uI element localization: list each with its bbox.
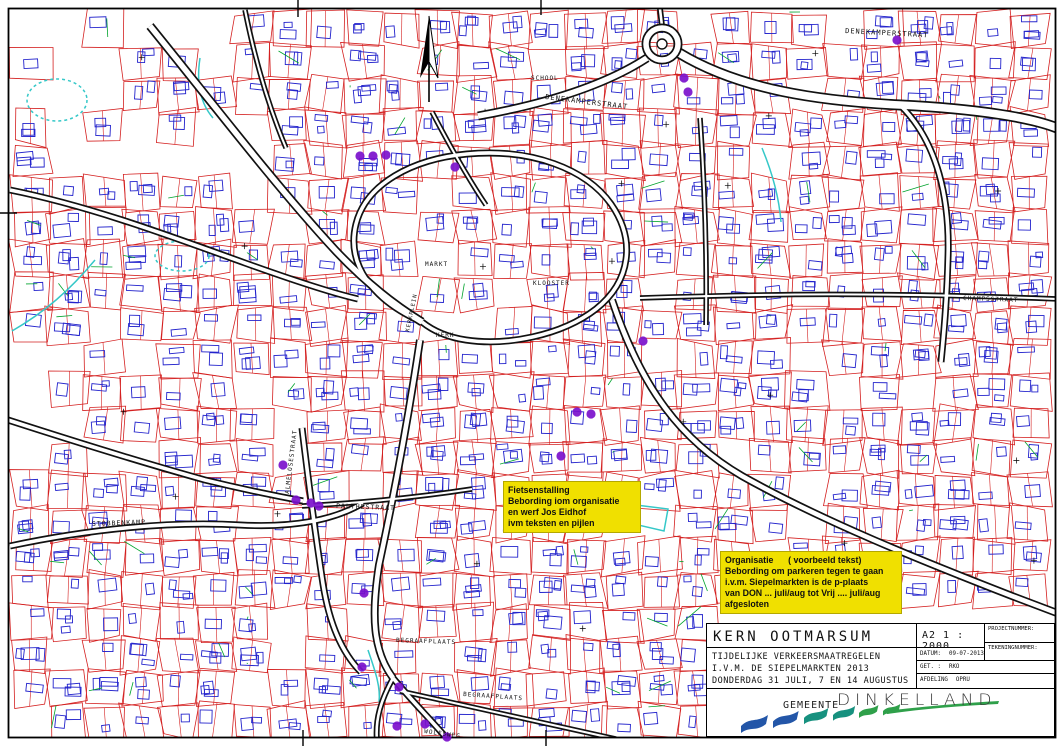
afdeling-label: AFDELING <box>920 677 948 683</box>
street-label: KERK <box>436 332 454 339</box>
afdeling-value: OPRU <box>956 677 970 683</box>
note-line: afgesloten <box>725 599 897 610</box>
note-line: Organisatie ( voorbeeld tekst) <box>725 555 897 566</box>
measure-dot <box>683 87 692 96</box>
measure-dot <box>556 451 565 460</box>
measure-dot <box>314 501 323 510</box>
street-label: SCHOOL <box>531 75 559 82</box>
street-label: KLOOSTER <box>533 280 570 287</box>
measure-dot <box>306 498 315 507</box>
note-line: i.v.m. Siepelmarkten is de p-plaats <box>725 577 897 588</box>
afdeling-field: AFDELINGOPRU <box>917 674 1056 689</box>
datum-label: DATUM: <box>920 651 941 657</box>
note-line: van DON ... juli/aug tot Vrij .... juli/… <box>725 588 897 599</box>
street-label: BEGRAAFPLAATS <box>463 691 523 702</box>
street-label: CHAMPSSTRAAT <box>963 295 1019 304</box>
street-label: DENEKAMPERSTRAAT <box>845 27 929 39</box>
get-value: RKO <box>949 664 959 670</box>
measure-dot <box>679 73 688 82</box>
projectnummer-field: PROJECTNUMMER: <box>985 624 1056 643</box>
note-organisatie: Organisatie ( voorbeeld tekst)Bebording … <box>720 551 902 614</box>
note-line: Fietsenstalling <box>508 485 636 496</box>
note-line: Bebording om parkeren tegen te gaan <box>725 566 897 577</box>
measure-dot <box>572 407 581 416</box>
note-line: Bebording iom organisatie <box>508 496 636 507</box>
sheet-scale: A2 1 : 2000 <box>917 624 985 648</box>
street-label: DENEKAMPERSTRAAT <box>545 93 629 111</box>
measure-dot <box>394 682 403 691</box>
measure-dot <box>355 151 364 160</box>
street-label: MARKT <box>425 261 448 268</box>
note-line: ivm teksten en pijlen <box>508 518 636 529</box>
note-fietsenstalling: FietsenstallingBebording iom organisatie… <box>503 481 641 533</box>
title-block: KERN OOTMARSUM A2 1 : 2000 PROJECTNUMMER… <box>706 623 1055 737</box>
measure-dot <box>368 151 377 160</box>
measure-dot <box>392 721 401 730</box>
drawing-description: TIJDELIJKE VERKEERSMAATREGELEN I.V.M. DE… <box>707 648 917 689</box>
measure-dot <box>291 495 300 504</box>
measure-dot <box>357 662 366 671</box>
street-label: BEGRAAFPLAATS <box>396 637 456 646</box>
datum-field: DATUM:09-07-2013 <box>917 648 985 661</box>
description-line: I.V.M. DE SIEPELMARKTEN 2013 <box>712 663 916 675</box>
measure-dot <box>638 336 647 345</box>
drawing-title: KERN OOTMARSUM <box>707 624 917 648</box>
logo-dinkelland-text: DINKELLAND <box>837 691 996 710</box>
getekend-field: GET. :RKO <box>917 661 1056 674</box>
logo-gemeente-text: GEMEENTE <box>783 700 839 711</box>
datum-value: 09-07-2013 <box>949 651 984 657</box>
measure-dot <box>450 162 459 171</box>
measure-dot <box>381 150 390 159</box>
map-sheet: DENEKAMPERSTRAATDENEKAMPERSTRAATSCHOOLMA… <box>0 0 1063 746</box>
measure-dot <box>586 409 595 418</box>
get-label: GET. : <box>920 664 941 670</box>
description-line: DONDERDAG 31 JULI, 7 EN 14 AUGUSTUS <box>712 675 916 687</box>
municipality-logo: GEMEENTE DINKELLAND <box>707 689 1056 736</box>
note-line: en werf Jos Eidhof <box>508 507 636 518</box>
description-line: TIJDELIJKE VERKEERSMAATREGELEN <box>712 651 916 663</box>
tekeningnummer-field: TEKENINGNUMMER: <box>985 643 1056 661</box>
measure-dot <box>359 588 368 597</box>
